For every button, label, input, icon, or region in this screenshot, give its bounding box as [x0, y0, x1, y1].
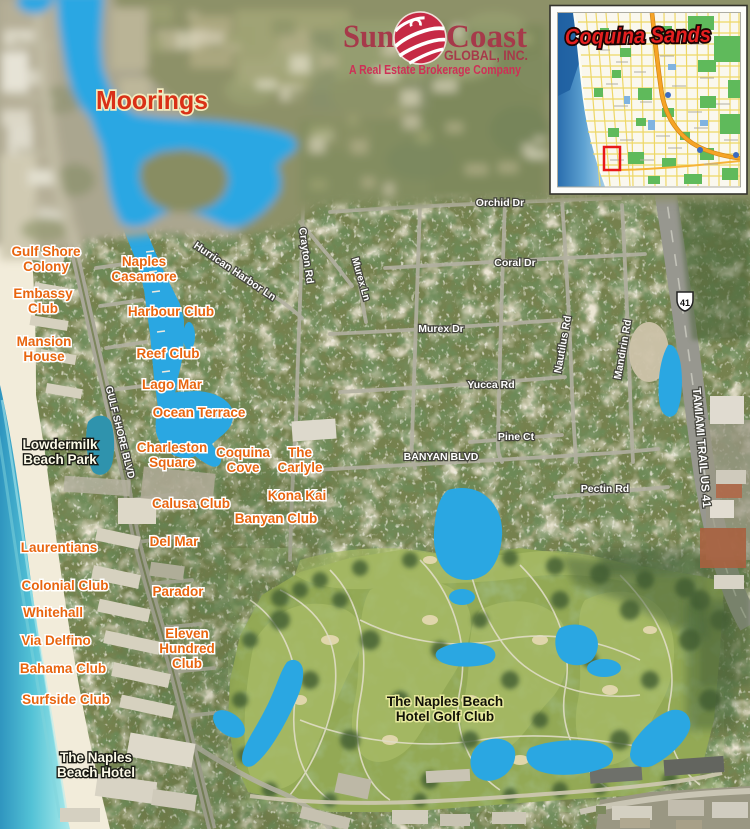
svg-text:Lowdermilk: Lowdermilk	[22, 437, 98, 452]
svg-text:41: 41	[680, 298, 690, 308]
svg-text:BANYAN BLVD: BANYAN BLVD	[404, 451, 479, 463]
svg-text:Embassy: Embassy	[13, 286, 73, 301]
svg-text:Parador: Parador	[152, 584, 204, 599]
svg-text:Calusa Club: Calusa Club	[152, 496, 230, 511]
svg-text:Gulf Shore: Gulf Shore	[11, 244, 80, 259]
svg-text:Colonial Club: Colonial Club	[22, 578, 109, 593]
svg-text:Beach Park: Beach Park	[23, 452, 97, 467]
svg-text:Carlyle: Carlyle	[277, 460, 323, 475]
svg-text:Moorings: Moorings	[96, 85, 208, 115]
svg-text:Pectin Rd: Pectin Rd	[581, 483, 629, 495]
svg-text:Coral Dr: Coral Dr	[494, 257, 535, 269]
svg-text:Eleven: Eleven	[165, 626, 209, 641]
svg-text:Beach Hotel: Beach Hotel	[57, 765, 135, 780]
svg-text:A Real Estate Brokerage Compan: A Real Estate Brokerage Company	[349, 62, 522, 77]
svg-text:Club: Club	[28, 301, 58, 316]
svg-text:Club: Club	[172, 656, 202, 671]
svg-text:Naples: Naples	[122, 254, 166, 269]
svg-text:Coquina Sands: Coquina Sands	[565, 22, 711, 50]
svg-text:The Naples Beach: The Naples Beach	[387, 694, 503, 709]
svg-text:Surfside Club: Surfside Club	[22, 692, 110, 707]
svg-text:Harbour Club: Harbour Club	[128, 304, 214, 319]
svg-text:Mansion: Mansion	[17, 334, 72, 349]
svg-text:The Naples: The Naples	[60, 750, 132, 765]
svg-text:Hotel Golf Club: Hotel Golf Club	[396, 709, 494, 724]
svg-text:Bahama Club: Bahama Club	[20, 661, 106, 676]
svg-text:Whitehall: Whitehall	[23, 605, 83, 620]
svg-text:Casamore: Casamore	[111, 269, 177, 284]
svg-text:Colony: Colony	[23, 259, 69, 274]
svg-text:Banyan Club: Banyan Club	[235, 511, 318, 526]
svg-text:Lago Mar: Lago Mar	[142, 377, 203, 392]
svg-text:Laurentians: Laurentians	[21, 540, 98, 555]
svg-text:Yucca Rd: Yucca Rd	[467, 379, 514, 391]
svg-text:Ocean Terrace: Ocean Terrace	[153, 405, 246, 420]
svg-text:Hundred: Hundred	[159, 641, 215, 656]
svg-text:The: The	[288, 445, 312, 460]
svg-text:Sun: Sun	[343, 19, 394, 55]
svg-text:Del Mar: Del Mar	[150, 534, 200, 549]
svg-text:Via Delfino: Via Delfino	[21, 633, 91, 648]
svg-text:Kona Kai: Kona Kai	[268, 488, 327, 503]
svg-text:Coquina: Coquina	[216, 445, 270, 460]
svg-text:Orchid Dr: Orchid Dr	[476, 197, 524, 209]
svg-text:Cove: Cove	[226, 460, 260, 475]
svg-text:House: House	[23, 349, 65, 364]
svg-text:Reef Club: Reef Club	[136, 346, 199, 361]
svg-text:GLOBAL, INC.: GLOBAL, INC.	[444, 47, 528, 63]
svg-text:Charleston: Charleston	[137, 440, 208, 455]
svg-text:Pine Ct: Pine Ct	[498, 431, 535, 443]
svg-text:Square: Square	[149, 455, 195, 470]
svg-text:Murex Dr: Murex Dr	[418, 323, 464, 335]
